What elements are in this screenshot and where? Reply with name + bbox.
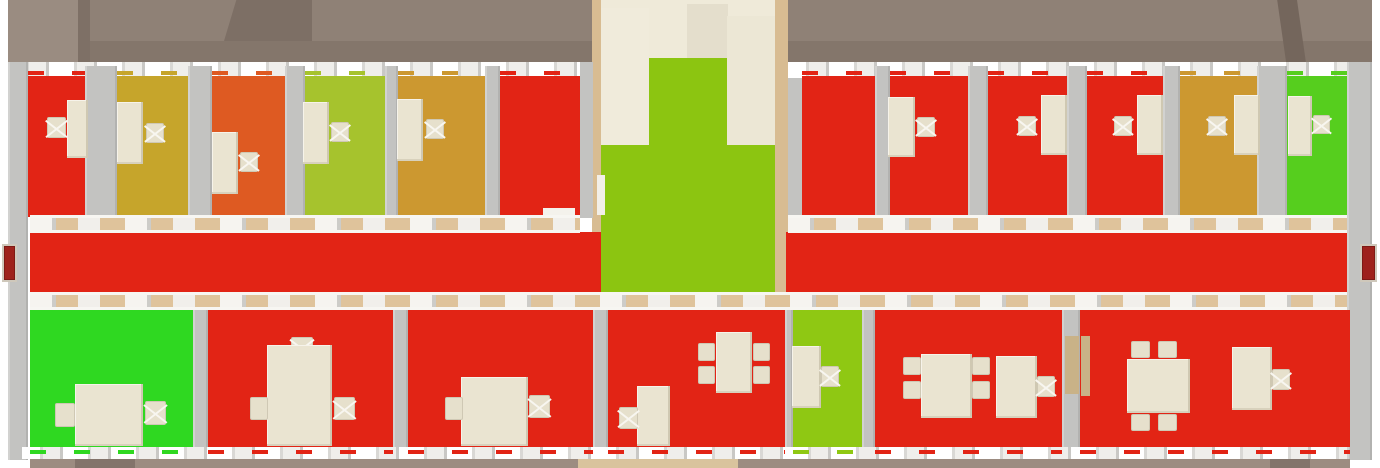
roof-left-corner [8,0,78,63]
desk [888,97,915,157]
chair [972,357,990,375]
office-chair [1114,116,1132,136]
meeting-table [75,384,143,446]
chair [972,381,990,399]
desk [1232,347,1272,410]
chair [903,357,921,375]
corridor-door-west[interactable] [2,244,17,282]
chair [1131,414,1150,431]
lobby-floor-upper[interactable] [649,58,727,146]
chair [55,403,75,427]
desk [1041,95,1067,155]
lobby-floor[interactable] [601,145,775,308]
desk [1288,96,1312,156]
floorplan-3d-viewport[interactable] [0,0,1380,468]
wall-top-band [30,292,1347,310]
chair [1131,341,1150,358]
window-color-strip [408,450,593,454]
chair [1158,414,1177,431]
chair [903,381,921,399]
corridor-floor[interactable] [30,232,601,292]
window-color-strip [500,71,580,75]
window-color-strip [988,71,1067,75]
office-chair [426,119,444,139]
desk [117,102,143,164]
stairwell-wall-right [788,62,803,218]
window-color-strip [1087,71,1163,75]
window-color-strip [793,450,862,454]
office-chair [331,122,349,142]
interior-wall [1067,66,1087,216]
desk [637,386,670,446]
ground-strip [135,459,578,468]
office-chair [529,395,550,418]
room-door [1081,336,1090,396]
meeting-table [1127,359,1190,413]
office-chair [334,397,355,420]
office-chair [917,117,935,137]
window-color-strip [890,71,968,75]
window-color-strip [212,71,285,75]
staircase [601,8,649,154]
ground-strip [30,459,75,468]
corridor-door-east[interactable] [1360,244,1377,282]
office-chair [1018,116,1036,136]
interior-wall [968,66,988,216]
desk [303,102,329,164]
window-color-strip [30,450,193,454]
window-color-strip [117,71,188,75]
window-color-strip [1180,71,1257,75]
interior-wall [193,308,208,457]
roof-fold-left [78,0,90,63]
ground-strip [738,459,1270,468]
window-color-strip [208,450,393,454]
corridor-floor[interactable] [786,232,1347,292]
window-color-strip [875,450,1062,454]
window-color-strip [802,71,875,75]
desk [397,99,423,161]
interior-wall [485,66,500,216]
interior-wall [85,66,117,216]
office-chair [240,152,258,172]
desk [1137,95,1163,155]
ground-strip [1270,459,1310,468]
office-chair [1272,369,1290,390]
chair [445,397,463,420]
office-chair [146,123,164,143]
interior-wall [593,308,608,457]
interior-wall [1163,66,1180,216]
wall-top-band [788,215,1347,233]
office-room-b7[interactable] [1080,310,1350,447]
office-chair [821,366,839,387]
interior-wall [862,308,875,457]
interior-wall [285,66,305,216]
desk [996,356,1037,418]
window-color-strip [1080,450,1350,454]
meeting-table [461,377,528,446]
office-chair [47,117,66,138]
chair [1158,341,1177,358]
interior-wall [393,308,408,457]
ground-strip [1310,459,1350,468]
office-chair [1037,376,1055,397]
ground-strip [578,459,738,468]
office-chair [619,407,638,429]
ground-strip [75,459,135,468]
stair-landing [727,16,775,146]
wall-top-band [30,215,580,233]
chair [753,343,770,361]
chair [698,343,715,361]
roof-gable-left [224,0,312,41]
stair-tower-inner [687,4,728,58]
office-room-t6[interactable] [500,76,580,217]
office-chair [145,401,166,425]
office-chair [1313,115,1330,134]
office-chair [1208,116,1226,136]
desk [792,346,821,408]
chair [250,397,268,420]
window-color-strip [608,450,785,454]
desk [67,100,88,158]
meeting-table [921,354,972,418]
desk [1234,95,1260,155]
open-door-leaf [1065,336,1079,394]
window-color-strip [398,71,485,75]
window-color-strip [28,71,85,75]
desk [212,132,238,194]
office-room-t7[interactable] [802,76,875,217]
interior-wall [188,66,212,216]
interior-wall [1257,66,1287,216]
window-color-strip [1287,71,1347,75]
meeting-table [267,345,332,446]
meeting-table [716,332,752,393]
stairwell-wall-left [580,62,593,218]
window-color-strip [305,71,385,75]
chair [753,366,770,384]
chair [698,366,715,384]
lobby-door [597,175,605,215]
